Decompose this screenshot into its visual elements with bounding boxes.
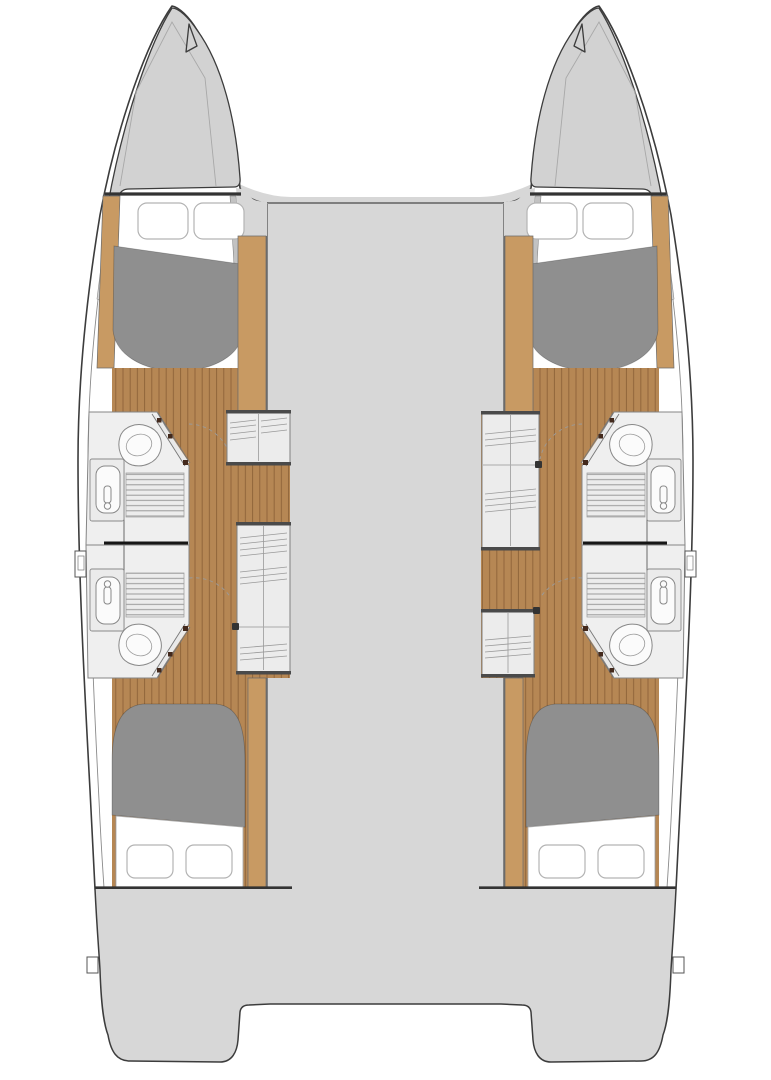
bridge-deck-fill <box>267 197 504 889</box>
locker-edge <box>236 671 291 675</box>
locker-edge <box>226 462 291 466</box>
cockpit <box>95 889 676 1062</box>
locker-edge <box>481 547 540 551</box>
port-hull <box>75 6 292 973</box>
locker-edge <box>481 411 540 415</box>
locker-edge <box>226 410 291 414</box>
locker-edge <box>481 674 535 678</box>
locker-edge <box>481 609 535 613</box>
cockpit-fill <box>95 889 676 1062</box>
starboard-companionway <box>481 411 542 678</box>
bridge-deck-top-flare <box>237 183 534 203</box>
floor-plan-svg <box>0 0 771 1080</box>
locker-latch <box>535 461 542 468</box>
catamaran-floor-plan <box>0 0 771 1080</box>
locker-edge <box>236 522 291 526</box>
locker-latch <box>232 623 239 630</box>
locker-latch <box>533 607 540 614</box>
